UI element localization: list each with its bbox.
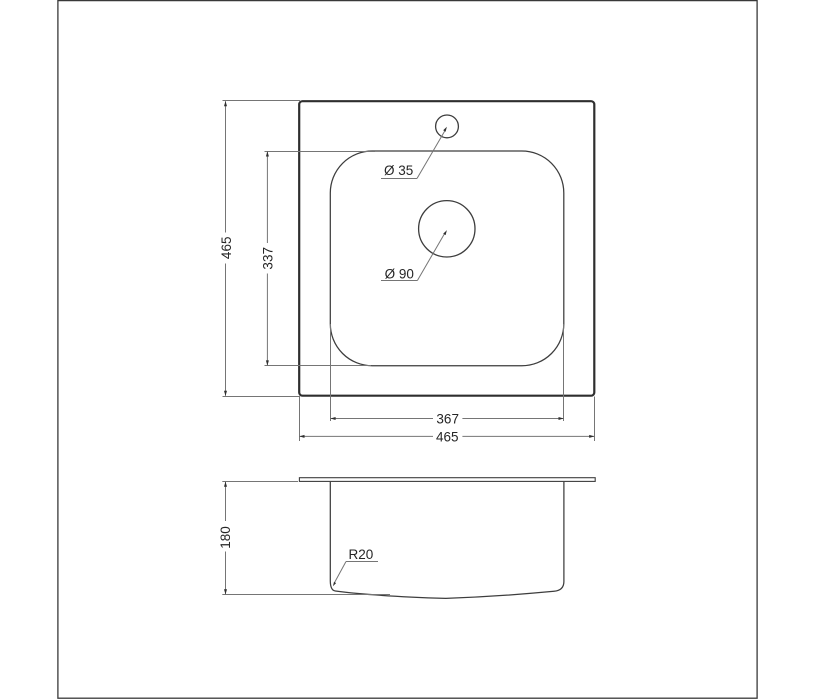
svg-text:180: 180 — [218, 526, 233, 549]
svg-text:337: 337 — [261, 247, 276, 270]
svg-text:465: 465 — [436, 429, 459, 444]
svg-text:R20: R20 — [349, 547, 374, 562]
svg-text:Ø 35: Ø 35 — [384, 163, 413, 178]
svg-text:Ø 90: Ø 90 — [385, 266, 414, 281]
svg-text:465: 465 — [219, 237, 234, 260]
svg-text:367: 367 — [436, 412, 459, 427]
